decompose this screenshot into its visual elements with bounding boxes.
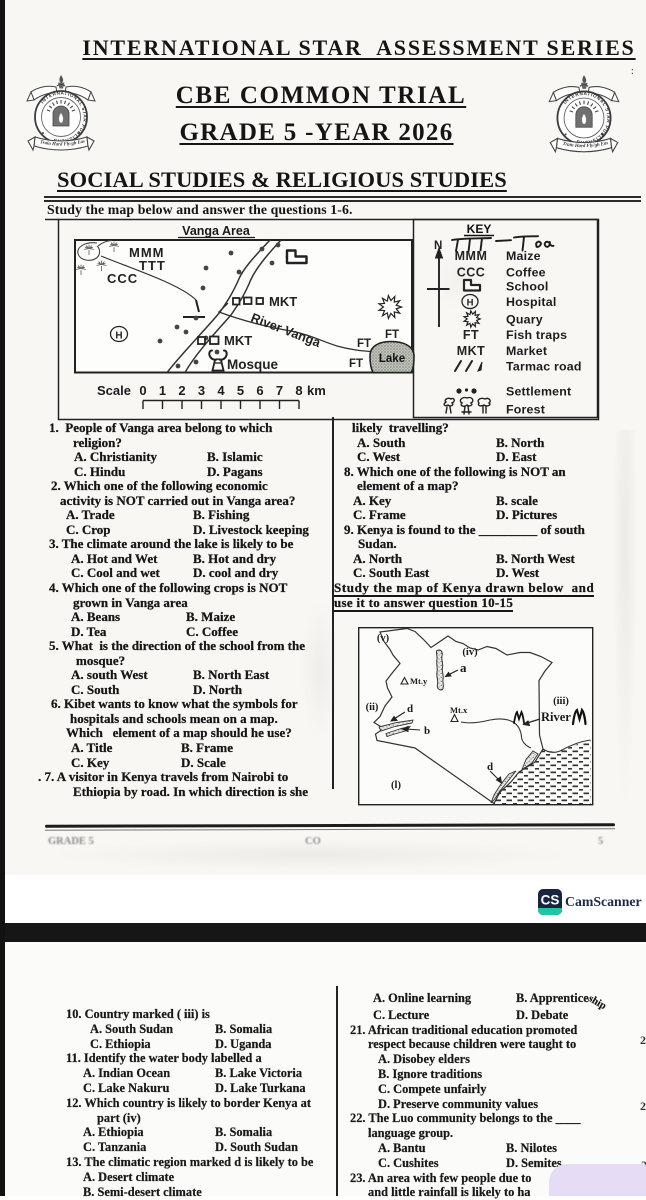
svg-text:FT: FT: [385, 329, 399, 341]
svg-text:MKT: MKT: [224, 333, 252, 348]
svg-text:CS: CS: [541, 893, 560, 908]
svg-text:MKT: MKT: [457, 344, 486, 358]
svg-text:Quary: Quary: [506, 313, 543, 327]
svg-text:Scale: Scale: [97, 383, 131, 398]
svg-text:TTT: TTT: [139, 258, 166, 273]
svg-text:MKT: MKT: [269, 294, 297, 309]
svg-text:Mosque: Mosque: [227, 357, 278, 372]
svg-text:Tarmac road: Tarmac road: [506, 360, 582, 374]
svg-text:km: km: [307, 383, 326, 398]
svg-text:5: 5: [237, 383, 244, 398]
svg-text:8: 8: [295, 383, 302, 398]
svg-text:d: d: [407, 703, 413, 715]
svg-text:4: 4: [217, 383, 225, 398]
svg-text:2: 2: [178, 383, 185, 398]
svg-text:b: b: [424, 725, 430, 737]
svg-text:Mt.y: Mt.y: [410, 676, 428, 686]
svg-text:FT: FT: [357, 338, 371, 350]
svg-text:Hospital: Hospital: [506, 295, 556, 309]
svg-text:FT: FT: [349, 358, 363, 370]
svg-text:KEY: KEY: [467, 222, 492, 236]
svg-text:Fish traps: Fish traps: [506, 328, 567, 342]
svg-text:(ii): (ii): [366, 702, 379, 713]
svg-text:(iii): (iii): [553, 696, 569, 707]
svg-text:7: 7: [276, 383, 283, 398]
svg-text:Lake: Lake: [379, 353, 405, 365]
svg-text:Settlement: Settlement: [506, 385, 571, 399]
svg-text:Mt.x: Mt.x: [450, 705, 468, 715]
svg-text:FT: FT: [463, 328, 479, 342]
svg-text:0: 0: [139, 383, 146, 398]
svg-text:3: 3: [198, 383, 205, 398]
svg-text:Coffee: Coffee: [506, 266, 546, 280]
svg-text:H: H: [115, 331, 122, 342]
svg-text:(l): (l): [391, 780, 401, 791]
svg-text:1: 1: [159, 383, 166, 398]
svg-text:River: River: [541, 710, 571, 724]
svg-text:(v): (v): [377, 633, 390, 644]
svg-text:Market: Market: [506, 344, 547, 358]
svg-text:a: a: [460, 660, 467, 675]
svg-text:CCC: CCC: [107, 271, 138, 286]
svg-text:6: 6: [256, 383, 263, 398]
svg-text:(iv): (iv): [462, 647, 478, 658]
svg-text:Vanga Area: Vanga Area: [182, 224, 251, 238]
svg-text:School: School: [506, 280, 549, 294]
svg-text:Forest: Forest: [506, 403, 545, 417]
svg-text:Maize: Maize: [506, 249, 541, 263]
